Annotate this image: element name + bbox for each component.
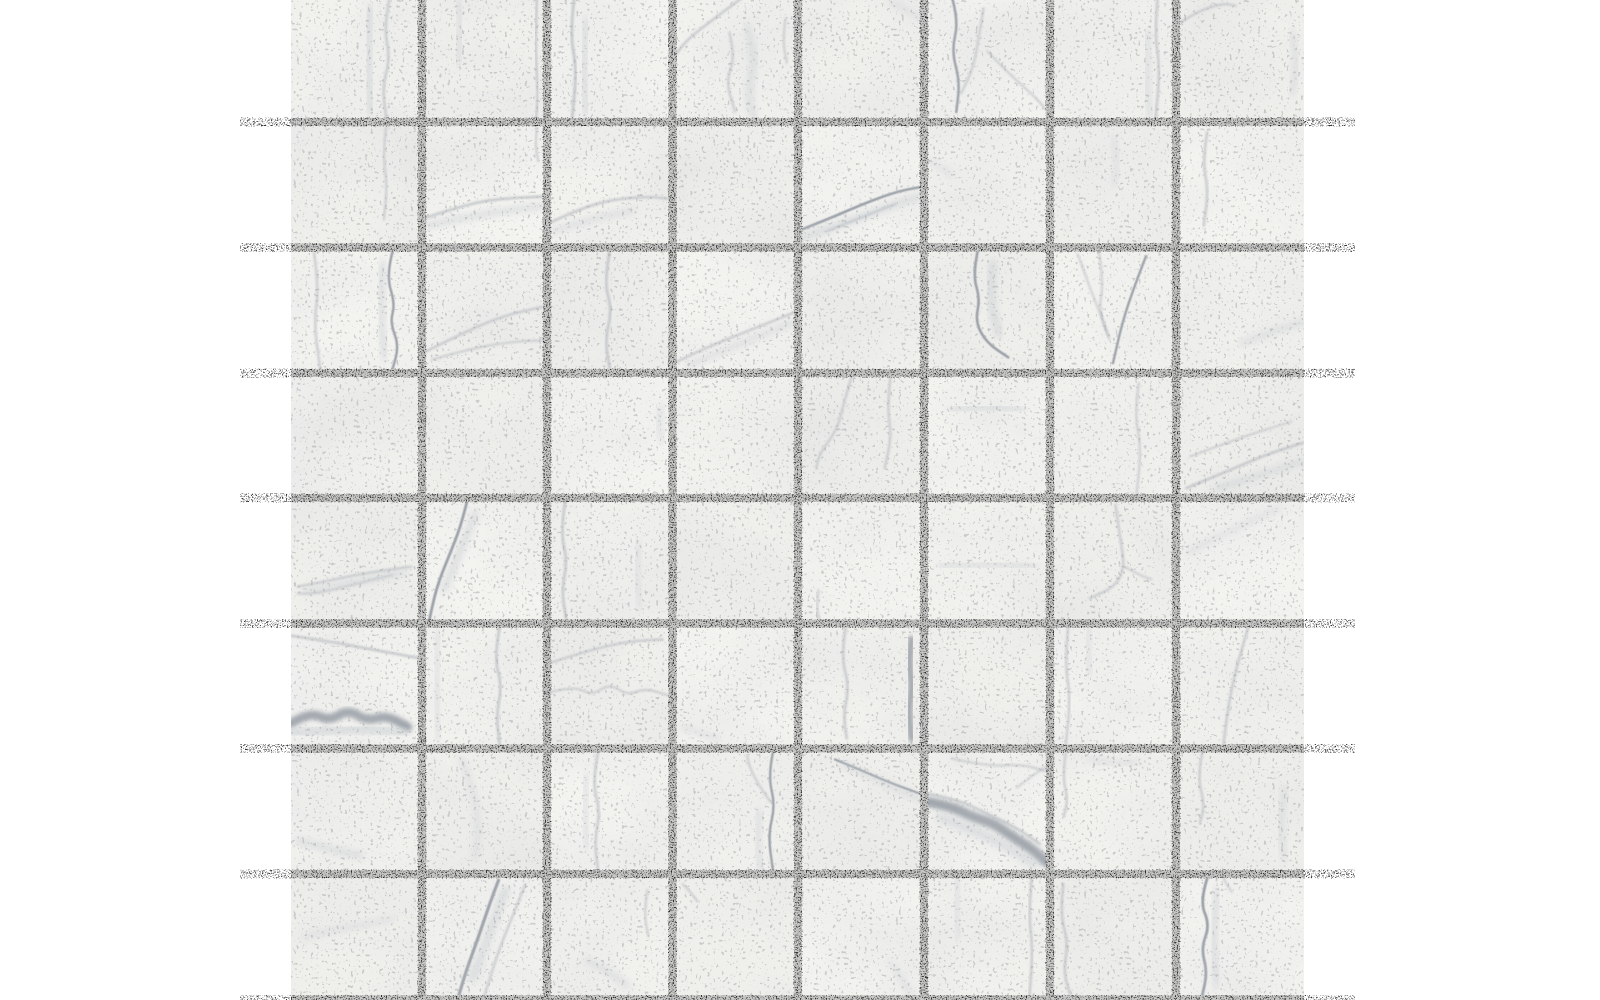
mosaic-canvas xyxy=(0,0,1600,1000)
photo-grain xyxy=(291,0,1304,1000)
marble-mosaic-photo xyxy=(0,0,1600,1000)
